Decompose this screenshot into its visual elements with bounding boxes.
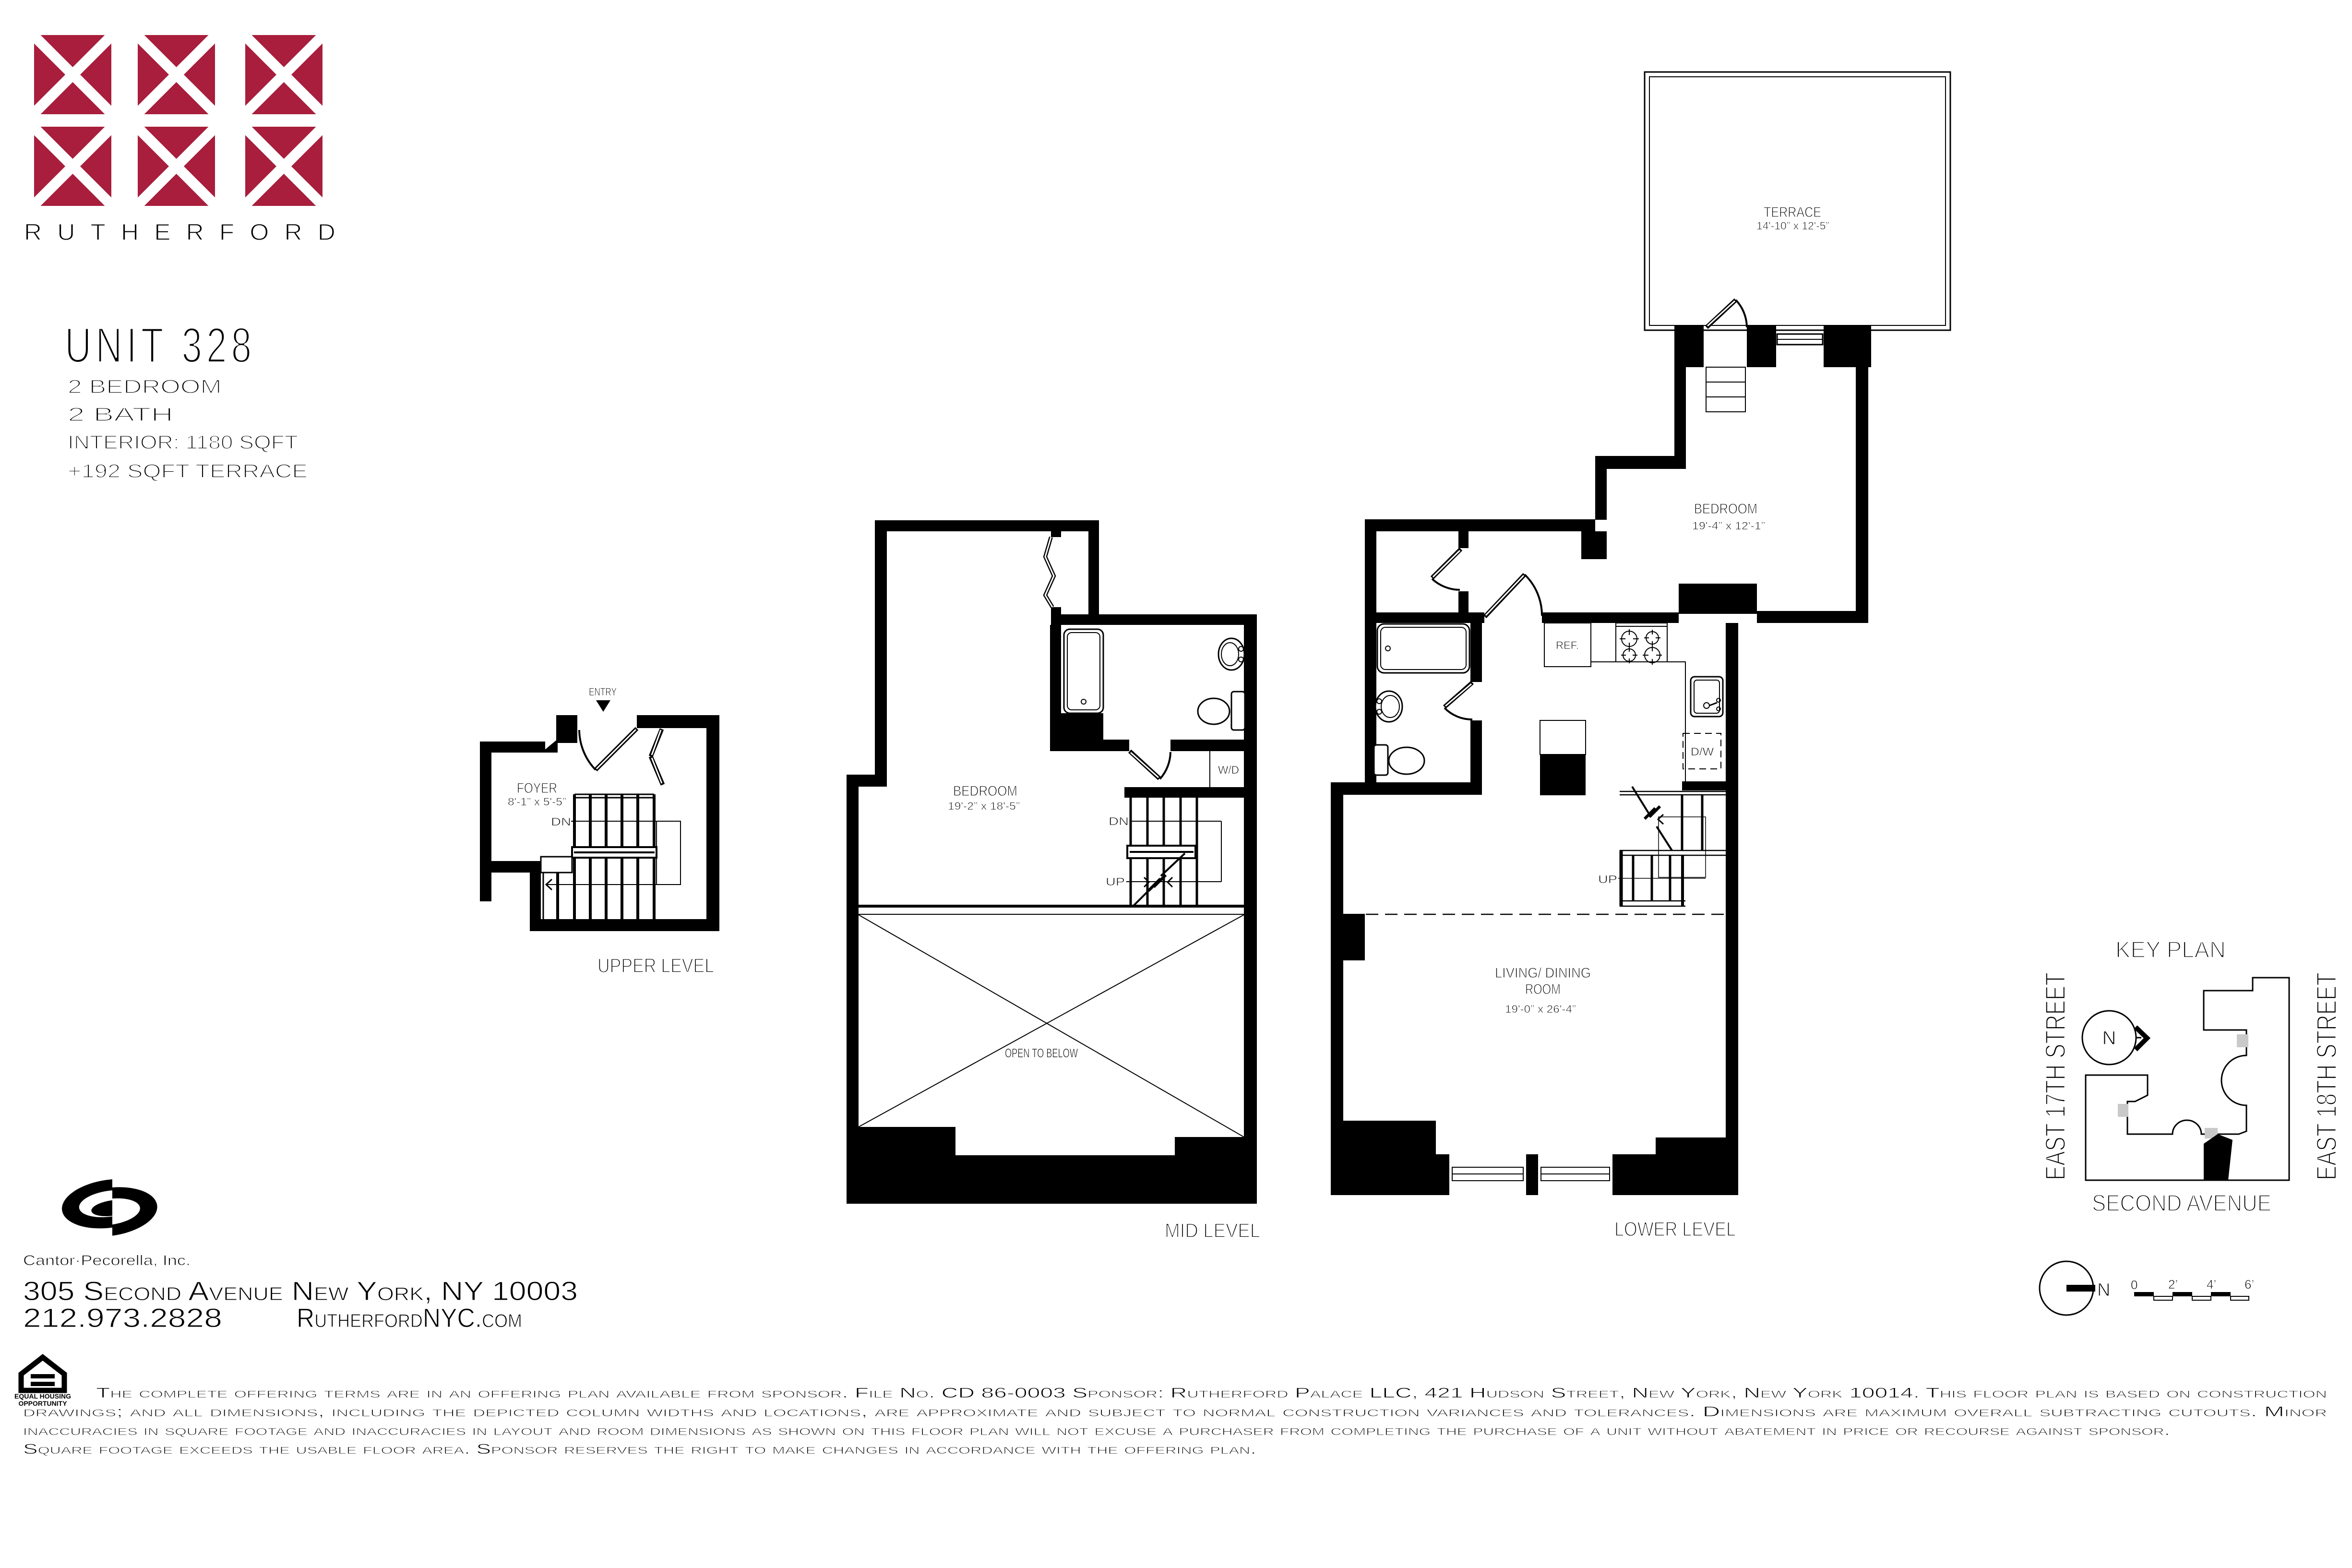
svg-text:EAST 18TH STREET: EAST 18TH STREET — [2311, 972, 2342, 1180]
svg-text:INTERIOR: 1180 SQFT: INTERIOR: 1180 SQFT — [68, 432, 298, 453]
svg-text:2 BEDROOM: 2 BEDROOM — [68, 376, 222, 397]
svg-text:RutherfordNYC.com: RutherfordNYC.com — [297, 1303, 522, 1333]
svg-text:305 Second Avenue New York, NY: 305 Second Avenue New York, NY 10003 — [23, 1276, 578, 1306]
svg-text:2’: 2’ — [2168, 1277, 2178, 1292]
svg-text:212.973.2828: 212.973.2828 — [23, 1303, 222, 1333]
svg-text:2 BATH: 2 BATH — [68, 404, 173, 425]
svg-text:N: N — [2097, 1280, 2110, 1300]
svg-text:Square footage exceeds the usa: Square footage exceeds the usable floor … — [23, 1441, 1256, 1457]
svg-text:TERRACE: TERRACE — [1764, 204, 1821, 220]
svg-text:SECOND AVENUE: SECOND AVENUE — [2092, 1191, 2271, 1216]
svg-text:BEDROOM: BEDROOM — [1694, 501, 1757, 517]
svg-text:DN: DN — [551, 815, 571, 828]
svg-text:19'-2” x 18'-5”: 19'-2” x 18'-5” — [948, 800, 1020, 812]
svg-text:4’: 4’ — [2207, 1277, 2216, 1292]
svg-text:OPEN TO BELOW: OPEN TO BELOW — [1005, 1046, 1078, 1060]
svg-text:inaccuracies in square footage: inaccuracies in square footage and inacc… — [23, 1423, 2170, 1438]
svg-text:19'-0” x 26'-4”: 19'-0” x 26'-4” — [1505, 1003, 1576, 1015]
svg-text:UNIT 328: UNIT 328 — [65, 318, 256, 373]
svg-text:REF.: REF. — [1556, 639, 1579, 651]
svg-text:19'-4” x 12'-1”: 19'-4” x 12'-1” — [1692, 520, 1765, 532]
svg-text:LOWER LEVEL: LOWER LEVEL — [1614, 1218, 1736, 1240]
svg-text:KEY PLAN: KEY PLAN — [2115, 937, 2226, 963]
svg-text:DN: DN — [1109, 815, 1129, 827]
svg-text:0: 0 — [2131, 1278, 2137, 1292]
svg-text:LIVING/ DINING: LIVING/ DINING — [1495, 965, 1591, 981]
svg-text:+192 SQFT TERRACE: +192 SQFT TERRACE — [68, 461, 308, 482]
svg-text:RUTHERFORD: RUTHERFORD — [24, 220, 351, 245]
svg-text:EQUAL HOUSING: EQUAL HOUSING — [14, 1392, 71, 1400]
svg-text:W/D: W/D — [1218, 764, 1239, 776]
svg-text:14'-10” x 12'-5”: 14'-10” x 12'-5” — [1756, 220, 1829, 232]
svg-text:UP: UP — [1106, 875, 1125, 888]
svg-text:ENTRY: ENTRY — [589, 686, 617, 698]
svg-text:N: N — [2102, 1028, 2116, 1049]
svg-text:FOYER: FOYER — [517, 780, 557, 796]
svg-text:The complete offering terms ar: The complete offering terms are in an of… — [96, 1385, 2327, 1401]
svg-text:ROOM: ROOM — [1525, 981, 1561, 997]
svg-text:UPPER LEVEL: UPPER LEVEL — [597, 954, 714, 977]
svg-text:EAST 17TH STREET: EAST 17TH STREET — [2040, 972, 2071, 1180]
svg-text:UP: UP — [1598, 873, 1617, 886]
svg-text:Cantor·Pecorella, Inc.: Cantor·Pecorella, Inc. — [23, 1253, 191, 1269]
svg-text:6’: 6’ — [2245, 1277, 2254, 1292]
svg-text:MID LEVEL: MID LEVEL — [1165, 1219, 1260, 1242]
svg-text:BEDROOM: BEDROOM — [953, 783, 1017, 799]
svg-text:8'-1” x 5'-5”: 8'-1” x 5'-5” — [508, 796, 566, 808]
svg-text:D/W: D/W — [1691, 745, 1714, 758]
svg-text:drawings; and all dimensions,: drawings; and all dimensions, including … — [23, 1404, 2327, 1420]
